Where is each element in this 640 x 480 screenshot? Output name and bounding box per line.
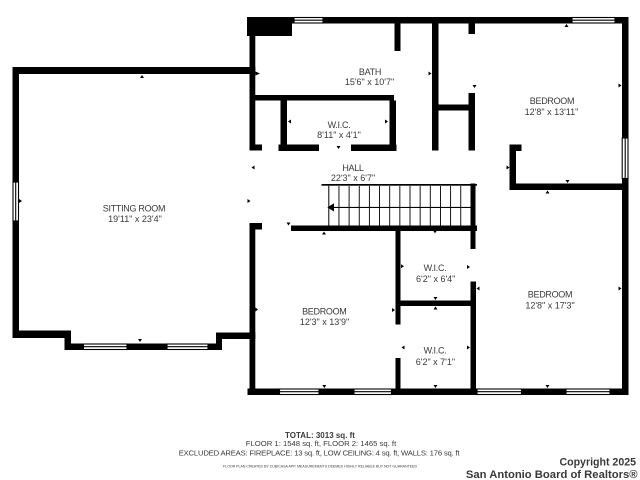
svg-text:19'11" x 23'4": 19'11" x 23'4" (108, 214, 162, 224)
svg-text:W.I.C.: W.I.C. (424, 345, 447, 355)
svg-text:HALL: HALL (342, 163, 364, 173)
svg-text:FLOOR 1: 1548 sq. ft, FLOOR 2:: FLOOR 1: 1548 sq. ft, FLOOR 2: 1465 sq. … (246, 439, 397, 448)
svg-text:BEDROOM: BEDROOM (302, 306, 346, 316)
svg-text:12'3" x 13'9": 12'3" x 13'9" (300, 317, 349, 327)
svg-text:BEDROOM: BEDROOM (530, 96, 574, 106)
svg-text:22'3" x 6'7": 22'3" x 6'7" (331, 173, 375, 183)
svg-text:8'11" x 4'1": 8'11" x 4'1" (317, 130, 361, 140)
svg-text:W.I.C.: W.I.C. (328, 120, 351, 130)
svg-text:SITTING ROOM: SITTING ROOM (103, 203, 165, 213)
svg-text:San Antonio Board of Realtors®: San Antonio Board of Realtors® (466, 469, 638, 480)
svg-text:15'6" x 10'7": 15'6" x 10'7" (345, 77, 394, 87)
svg-text:6'2" x 6'4": 6'2" x 6'4" (416, 274, 455, 284)
svg-text:BEDROOM: BEDROOM (528, 289, 572, 299)
svg-text:12'8" x 17'3": 12'8" x 17'3" (525, 300, 574, 310)
svg-text:W.I.C.: W.I.C. (424, 263, 447, 273)
svg-text:6'2" x 7'1": 6'2" x 7'1" (416, 357, 455, 367)
svg-text:Copyright 2025: Copyright 2025 (559, 456, 636, 468)
svg-text:BATH: BATH (359, 67, 381, 77)
svg-text:12'8" x 13'11": 12'8" x 13'11" (525, 107, 579, 117)
svg-text:FLOOR PLAN CREATED BY CUBICASA: FLOOR PLAN CREATED BY CUBICASA APP. MEAS… (223, 464, 418, 468)
svg-text:EXCLUDED AREAS: FIREPLACE: 13: EXCLUDED AREAS: FIREPLACE: 13 sq. ft, LO… (179, 449, 461, 458)
